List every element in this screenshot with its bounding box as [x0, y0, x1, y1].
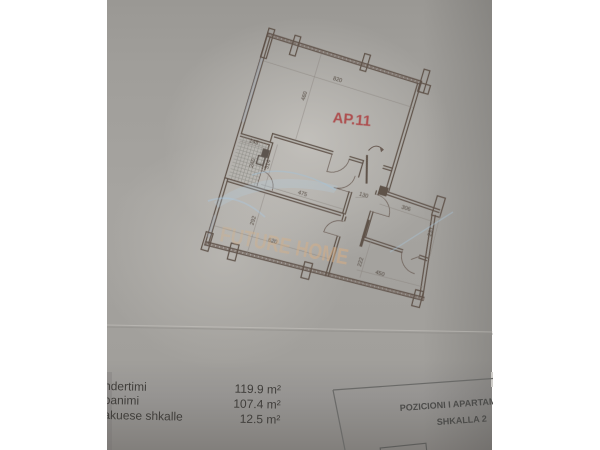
- svg-text:130: 130: [358, 191, 369, 199]
- svg-text:12.5 m²: 12.5 m²: [240, 412, 281, 427]
- svg-text:AP.11: AP.11: [332, 110, 372, 130]
- svg-text:POZICIONI I APARTAMENTIT: POZICIONI I APARTAMENTIT: [399, 394, 523, 413]
- svg-text:107.4 m²: 107.4 m²: [233, 397, 281, 412]
- svg-text:314: 314: [264, 159, 272, 170]
- svg-text:FUTURE HOME: FUTURE HOME: [218, 221, 350, 269]
- svg-text:ndertimi: ndertimi: [104, 379, 147, 394]
- svg-text:820: 820: [332, 76, 343, 84]
- svg-text:SHKALLA 2: SHKALLA 2: [436, 414, 487, 427]
- svg-text:292: 292: [250, 215, 258, 226]
- svg-text:475: 475: [297, 190, 308, 198]
- svg-text:222: 222: [357, 257, 365, 268]
- svg-text:450: 450: [374, 270, 385, 278]
- svg-text:145: 145: [248, 138, 259, 146]
- svg-text:460: 460: [301, 91, 309, 102]
- svg-text:akuese shkalle: akuese shkalle: [103, 408, 183, 424]
- svg-text:banimi: banimi: [104, 393, 140, 408]
- svg-text:119.9 m²: 119.9 m²: [234, 382, 281, 397]
